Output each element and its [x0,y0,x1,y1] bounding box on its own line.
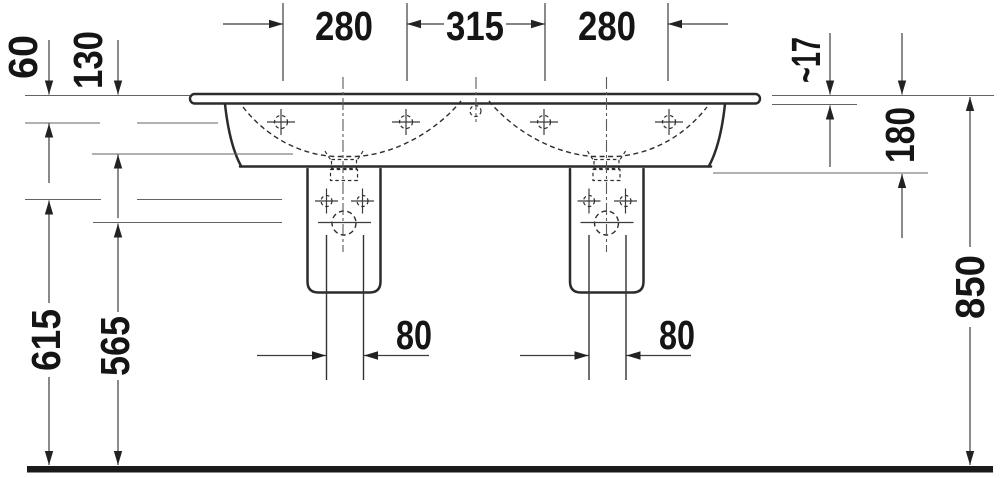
washbasin [190,94,760,181]
dim-label-top-left: 280 [315,3,373,49]
tap-hole-marker [267,109,295,135]
dim-label-right-small: ~17 [783,37,829,83]
dim-label-left-small: 60 [0,35,46,79]
top-dimension-group: 280 315 280 [223,3,728,81]
tap-hole-marker [655,109,683,135]
right-siphon-cover [570,169,644,380]
left-bowl-hidden-contour [243,101,461,157]
dim-label-top-right: 280 [578,3,636,49]
right-bowl-hidden-contour [489,101,707,157]
drain-pipe [589,235,626,380]
dim-label-right-tall: 850 [947,255,993,319]
outlet-dimension-group: 80 80 [257,312,695,358]
dim-label-outlet-left: 80 [396,312,432,358]
fixing-hole-marker [351,189,374,214]
floor-line [27,466,993,473]
dim-label-right-medium: 180 [877,107,923,163]
basin-right-wall [709,104,725,166]
dim-label-left-medium: 130 [65,31,111,89]
tap-hole-marker [392,109,420,135]
tap-hole-marker [530,109,558,135]
rim [190,94,760,104]
dim-label-left-tall-inner: 565 [92,316,138,376]
fixing-hole-marker [614,189,637,214]
drawing-canvas: 280 315 280 60 130 615 565 [0,0,1000,478]
basin-left-wall [225,104,241,166]
drain-pipe [327,235,364,380]
dim-label-top-center: 315 [446,3,504,49]
fixing-hole-marker [315,189,338,214]
fixing-hole-marker [578,189,601,214]
dim-label-outlet-right: 80 [659,312,695,358]
dim-label-left-tall-outer: 615 [23,309,69,371]
technical-drawing-svg: 280 315 280 60 130 615 565 [0,0,1000,478]
left-siphon-cover [308,169,381,380]
drain-connection-marker [318,211,371,235]
